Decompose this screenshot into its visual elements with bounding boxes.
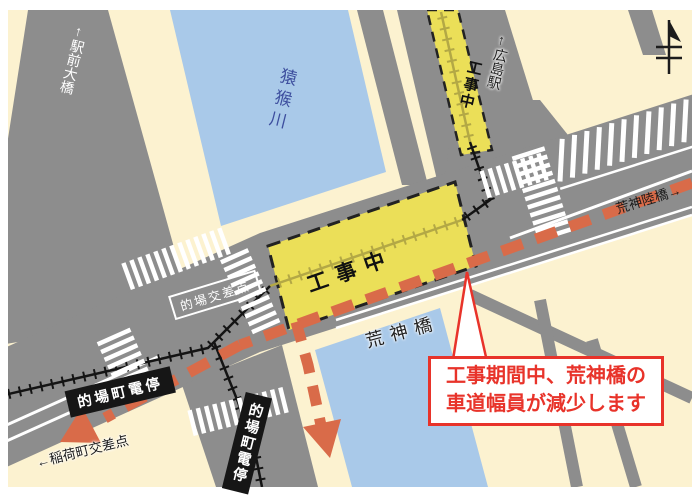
construction-map: ←駅前大橋 猿猴川 ←広島駅 工事中 工事中 荒神陸橋→ 荒神橋 的場交差点 的… [0,0,700,497]
callout-line2: 車道幅員が減少します [431,390,661,418]
callout-line1: 工事期間中、荒神橋の [431,362,661,390]
callout-box: 工事期間中、荒神橋の 車道幅員が減少します [428,356,664,426]
